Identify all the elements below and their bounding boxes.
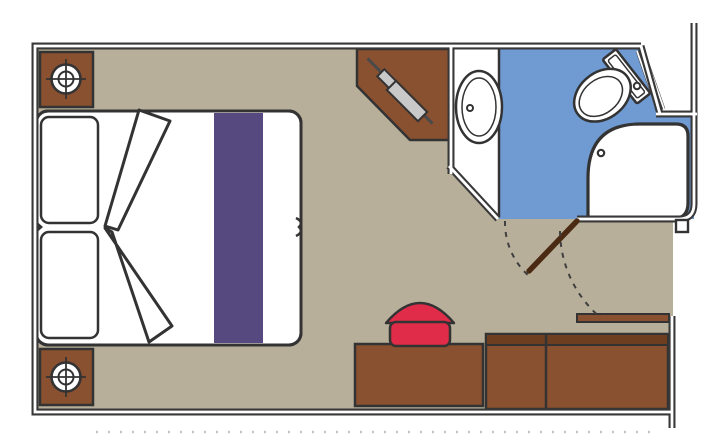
nightstand-top [40, 52, 93, 107]
entry-door-jamb [676, 220, 688, 232]
floor-plan-canvas [0, 0, 726, 447]
stool-seat [390, 322, 450, 346]
floor-plan [0, 0, 726, 447]
pillow-top [41, 117, 98, 223]
bed-runner [214, 113, 263, 343]
sink-basin [456, 71, 502, 143]
bathroom [451, 46, 694, 219]
luggage-shelf [577, 314, 669, 322]
wardrobe-top-band [486, 334, 668, 345]
shower-drain-dot [598, 150, 604, 156]
double-bed [34, 110, 301, 345]
desk [355, 344, 483, 406]
faucet-dot [467, 105, 473, 111]
nightstand-bottom [40, 349, 93, 405]
shower [588, 124, 688, 219]
pillow-bottom [41, 232, 98, 338]
toilet-flush-dot [634, 83, 640, 89]
wardrobe [486, 334, 668, 409]
